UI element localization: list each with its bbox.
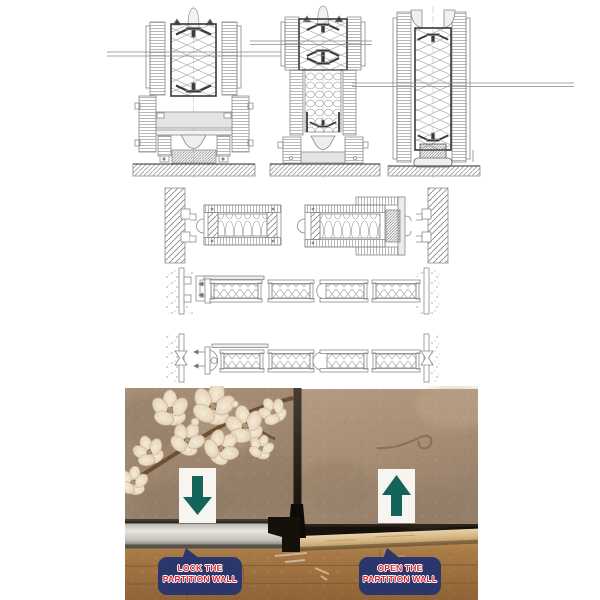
panel-segment [372, 350, 420, 372]
panel-segment [204, 276, 264, 303]
lock-label: LOCK THE PARTITION WALL [158, 557, 242, 595]
label-tail [182, 548, 200, 559]
open-label-line2: PARTITION WALL [359, 574, 441, 585]
photo-partition-operation: LOCK THE PARTITION WALL OPEN THE PARTITI… [125, 386, 478, 600]
plan-wall-junctions [165, 188, 448, 263]
panel-segment [212, 344, 268, 372]
panel-plan-telescopic [298, 197, 412, 255]
up-arrow-icon [378, 469, 415, 523]
panel-plan-closed [197, 205, 282, 245]
cad-drawings [0, 0, 600, 386]
left-panel [125, 386, 310, 522]
lock-label-line1: LOCK THE [158, 563, 242, 574]
vertical-section-mid-joint [250, 6, 380, 178]
panel-segment [268, 280, 314, 302]
plan-panel-chain-closed [166, 268, 441, 314]
open-label: OPEN THE PARTITION WALL [359, 557, 441, 595]
down-arrow-icon [179, 468, 216, 523]
panel-segment [372, 280, 420, 302]
vertical-section-panel-edge [352, 6, 574, 178]
panel-segment [313, 350, 368, 372]
lock-label-line2: PARTITION WALL [158, 574, 242, 585]
plan-panel-chain-expanded [166, 334, 441, 382]
panel-segment [268, 350, 314, 372]
screenshot-root: LOCK THE PARTITION WALL OPEN THE PARTITI… [0, 0, 600, 600]
vertical-section-head-track [107, 6, 281, 178]
open-label-line1: OPEN THE [359, 563, 441, 574]
label-tail [383, 548, 401, 559]
panel-segment [317, 280, 368, 302]
